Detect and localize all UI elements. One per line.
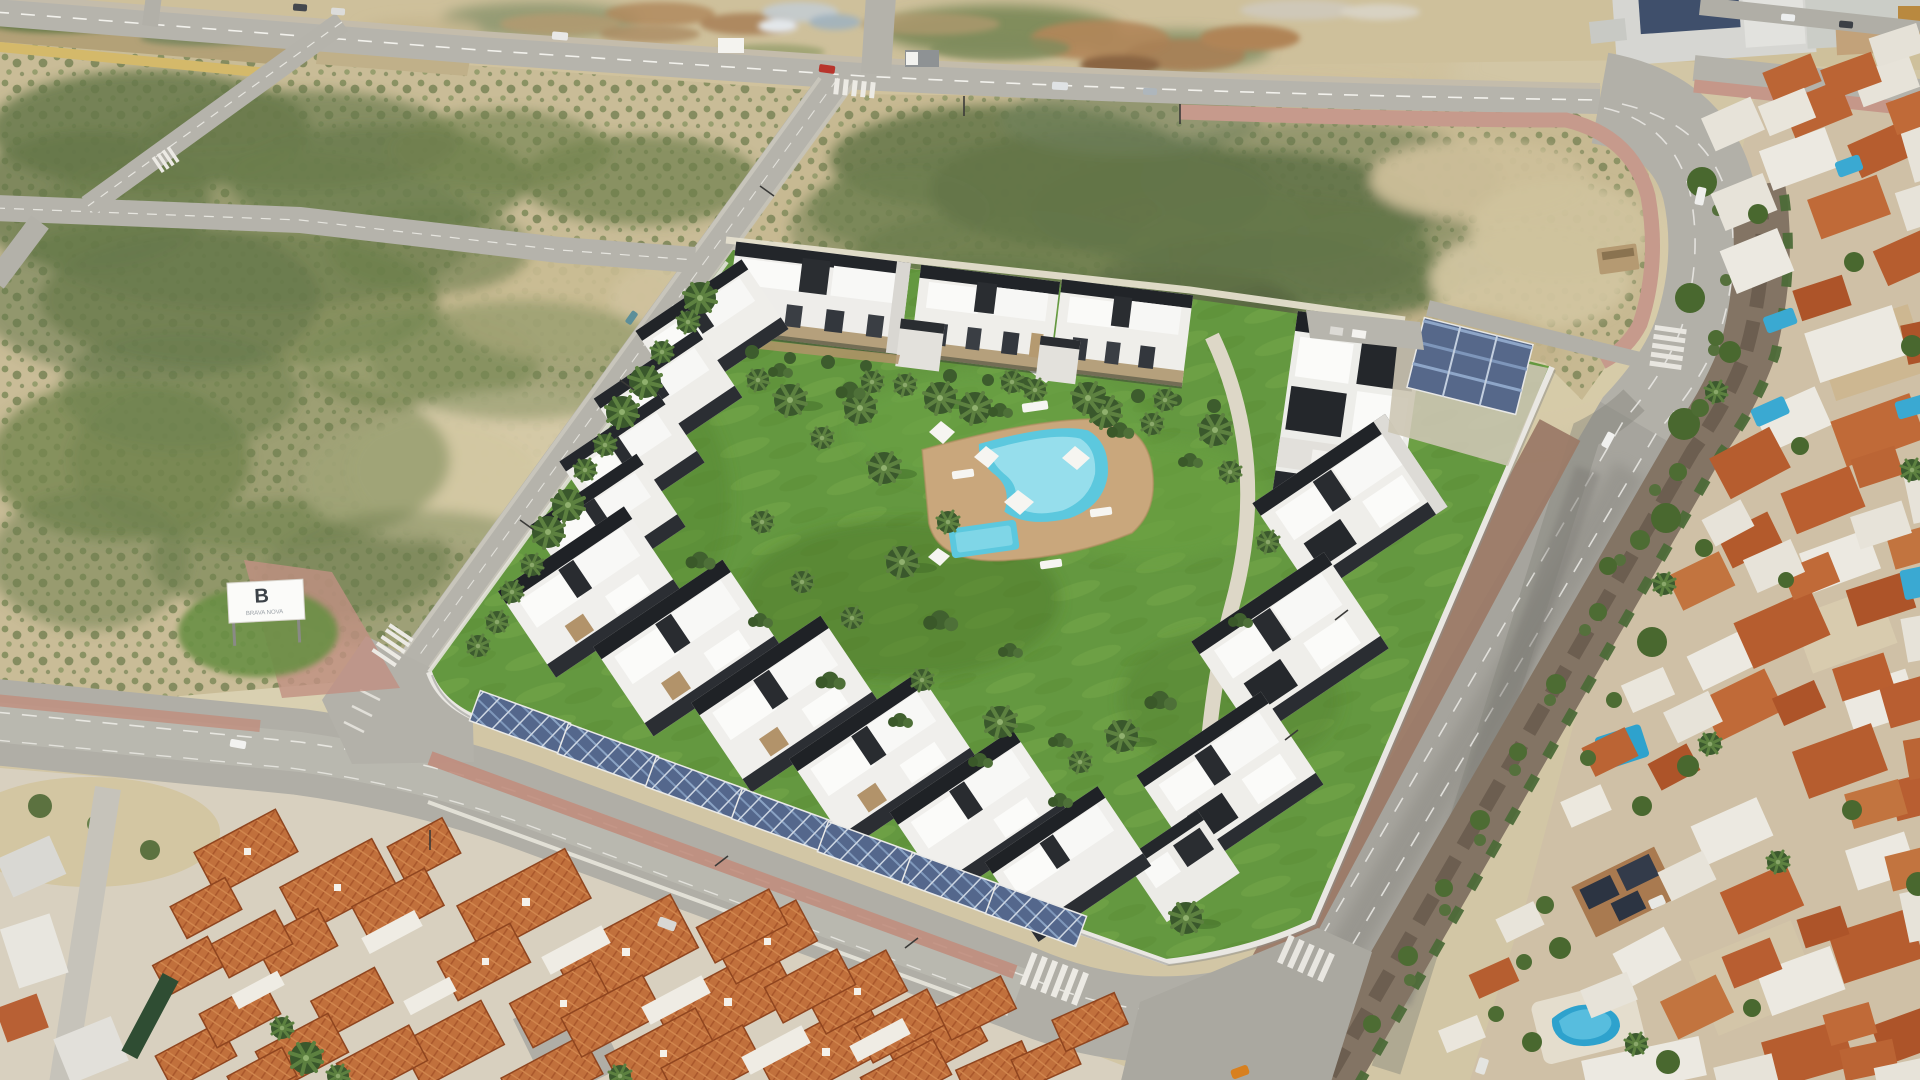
svg-text:B: B — [254, 585, 270, 608]
